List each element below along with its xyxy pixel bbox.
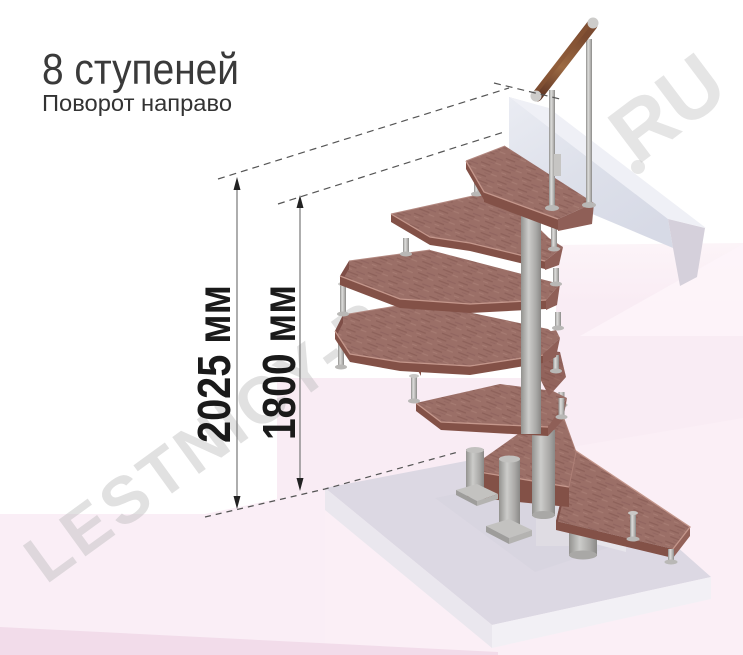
- svg-text:Поворот направо: Поворот направо: [42, 90, 232, 116]
- svg-text:1800 мм: 1800 мм: [253, 285, 305, 440]
- svg-text:2025 мм: 2025 мм: [188, 285, 240, 443]
- svg-text:8 ступеней: 8 ступеней: [42, 45, 239, 94]
